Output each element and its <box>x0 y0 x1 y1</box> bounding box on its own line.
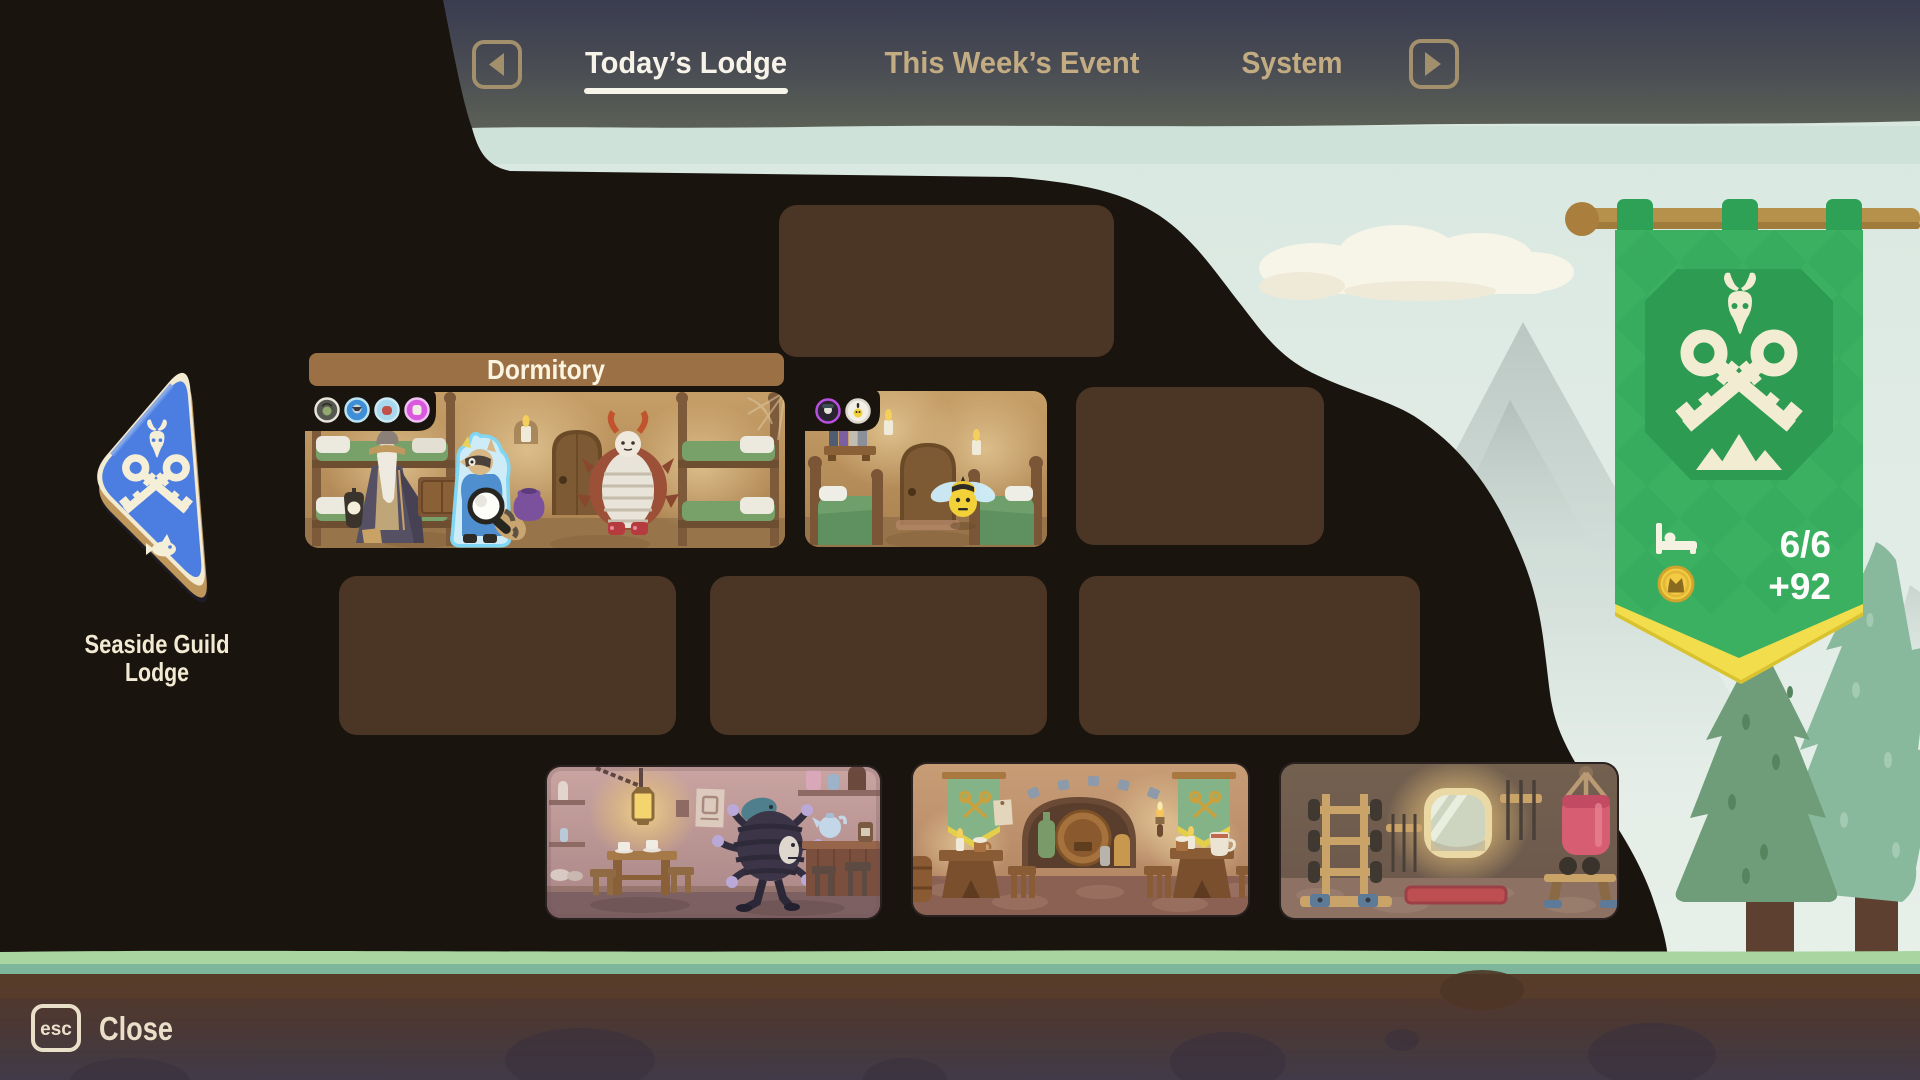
svg-text:Today’s Lodge: Today’s Lodge <box>585 45 787 80</box>
svg-text:Dormitory: Dormitory <box>487 354 605 385</box>
svg-text:System: System <box>1242 45 1343 80</box>
svg-text:Close: Close <box>99 1010 173 1047</box>
svg-text:+92: +92 <box>1768 566 1831 607</box>
svg-text:esc: esc <box>40 1019 72 1040</box>
svg-text:Lodge: Lodge <box>125 657 189 687</box>
svg-text:6/6: 6/6 <box>1780 524 1831 565</box>
svg-text:This Week’s Event: This Week’s Event <box>885 45 1140 80</box>
svg-text:Seaside Guild: Seaside Guild <box>85 629 230 659</box>
